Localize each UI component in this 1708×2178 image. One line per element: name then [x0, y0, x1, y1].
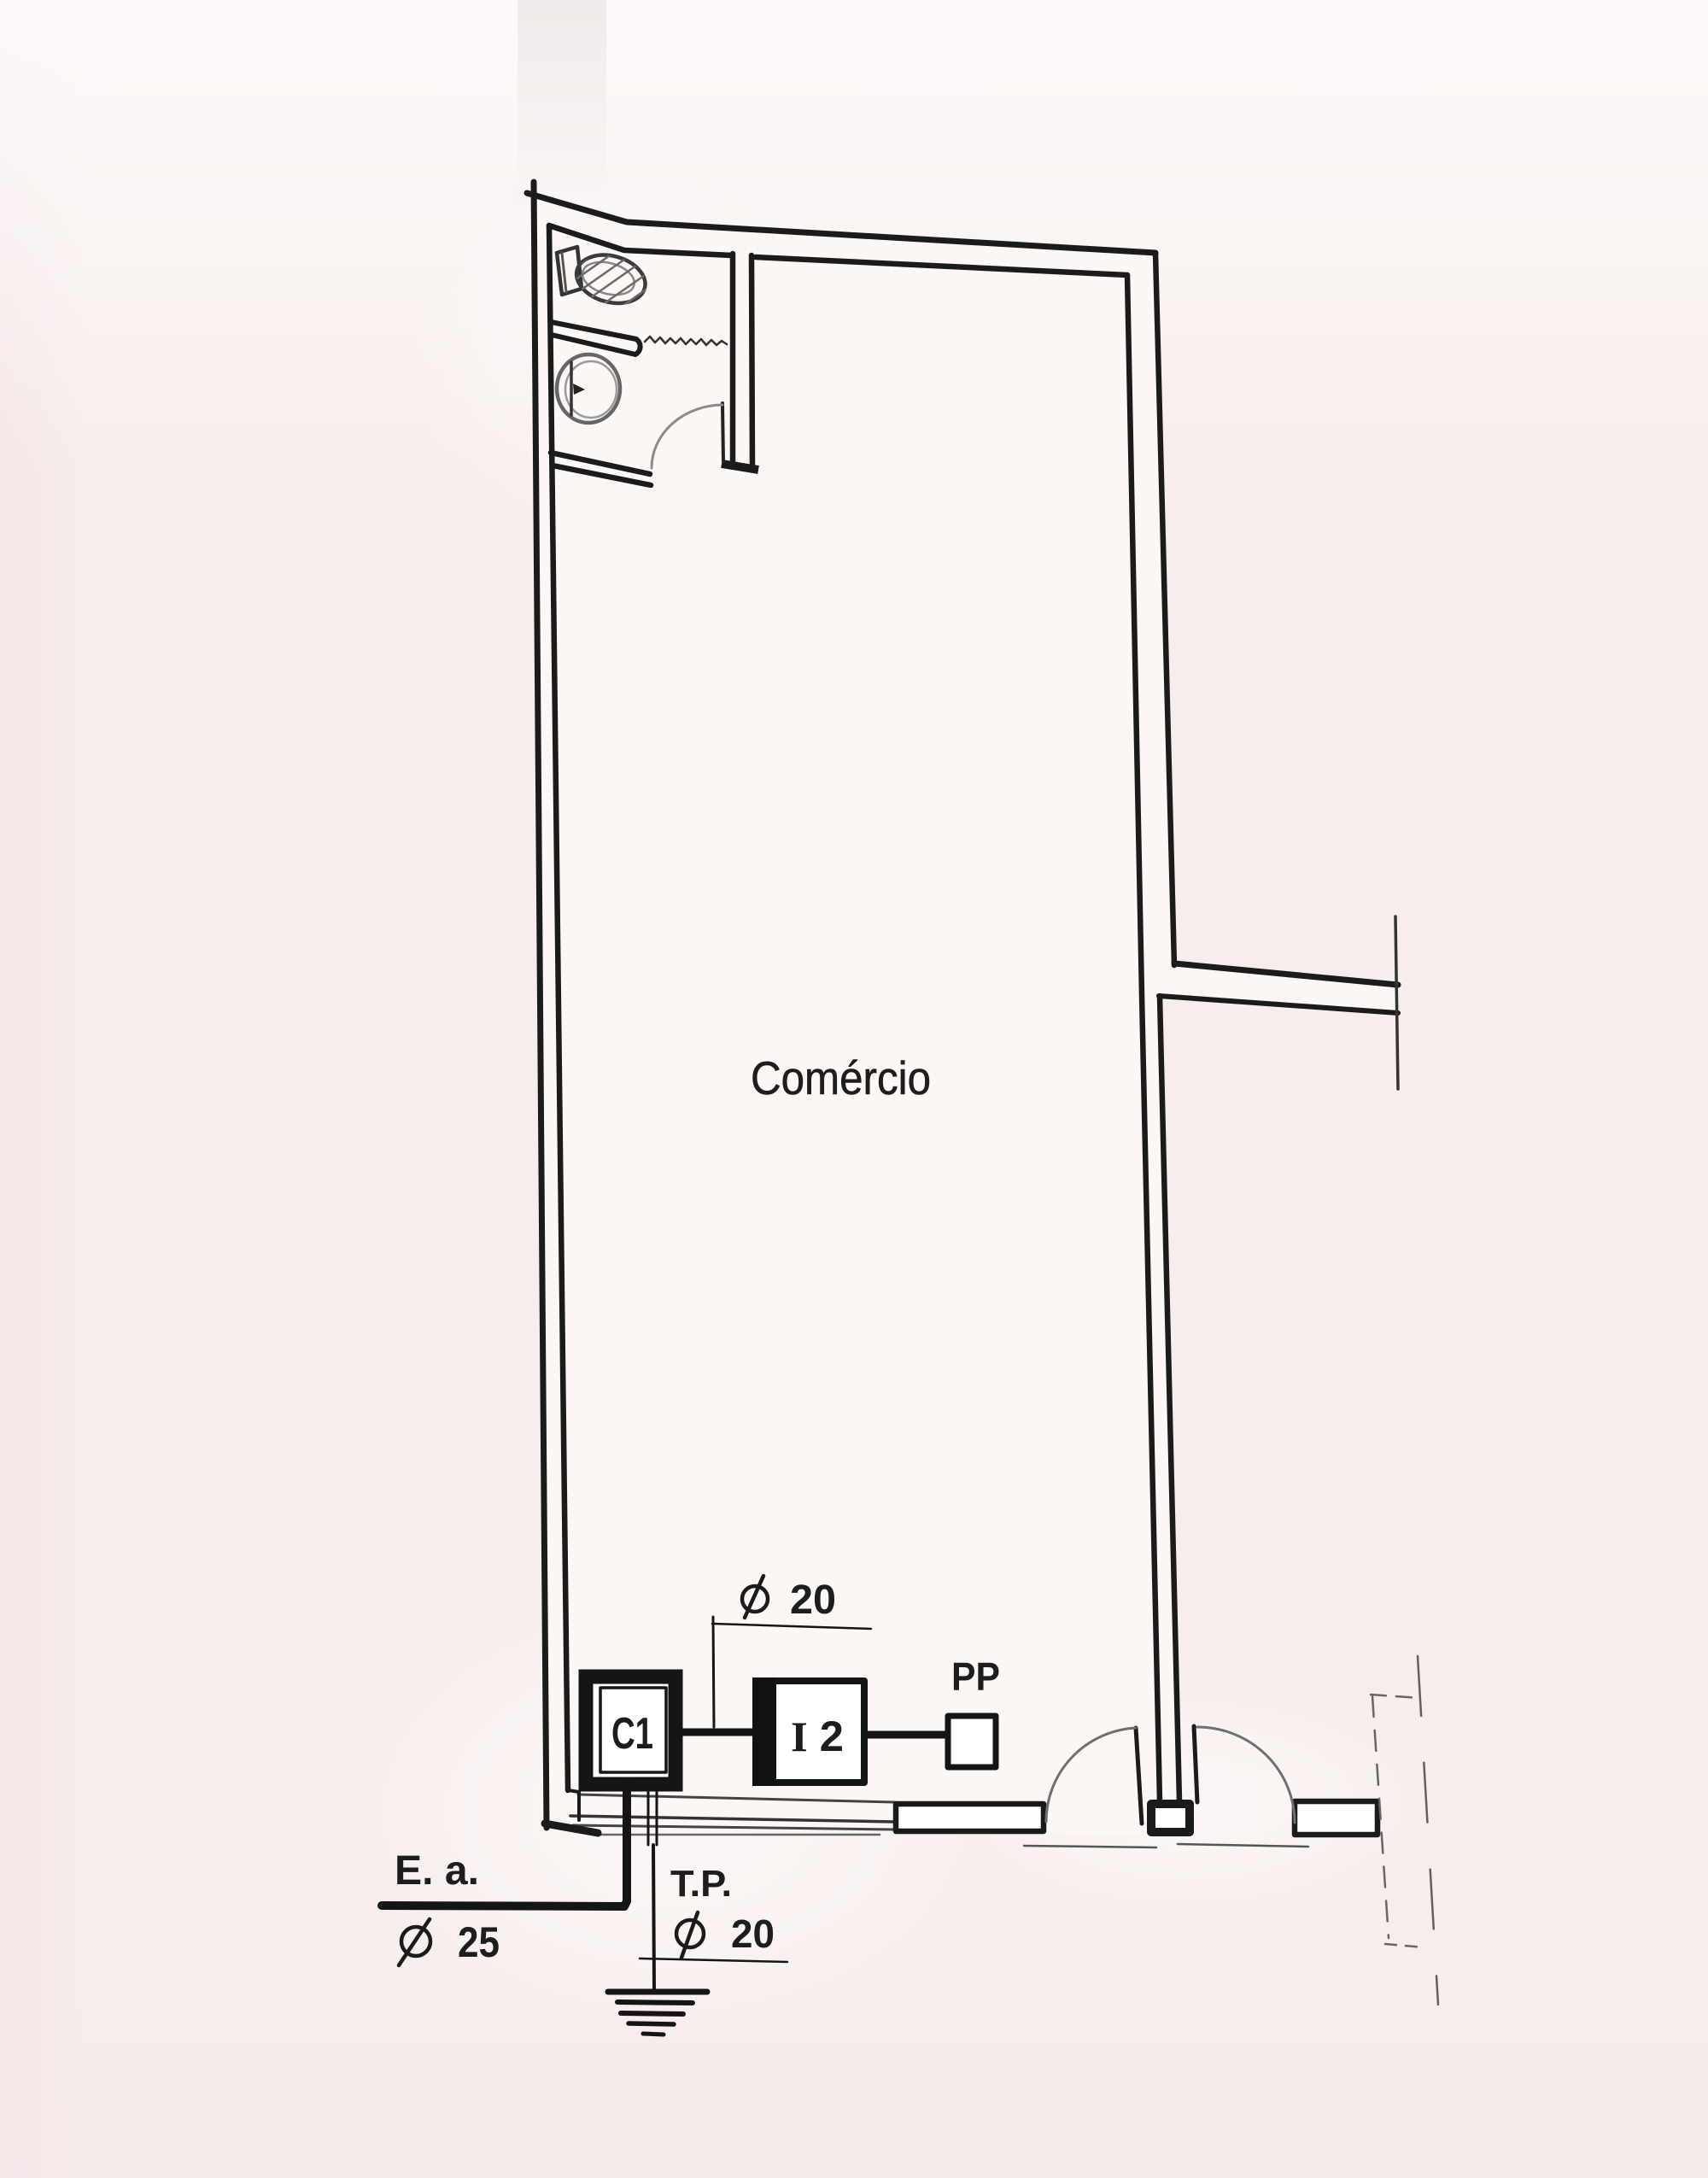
- svg-text:T.P.: T.P.: [670, 1863, 732, 1905]
- svg-text:Comércio: Comércio: [751, 1051, 931, 1104]
- svg-text:PP: PP: [951, 1654, 1000, 1699]
- svg-text:25: 25: [458, 1918, 500, 1966]
- svg-text:20: 20: [790, 1578, 836, 1623]
- svg-text:E. a.: E. a.: [395, 1848, 479, 1894]
- svg-text:I 2: I 2: [791, 1713, 844, 1760]
- svg-text:C1: C1: [611, 1709, 653, 1759]
- svg-text:20: 20: [731, 1912, 775, 1956]
